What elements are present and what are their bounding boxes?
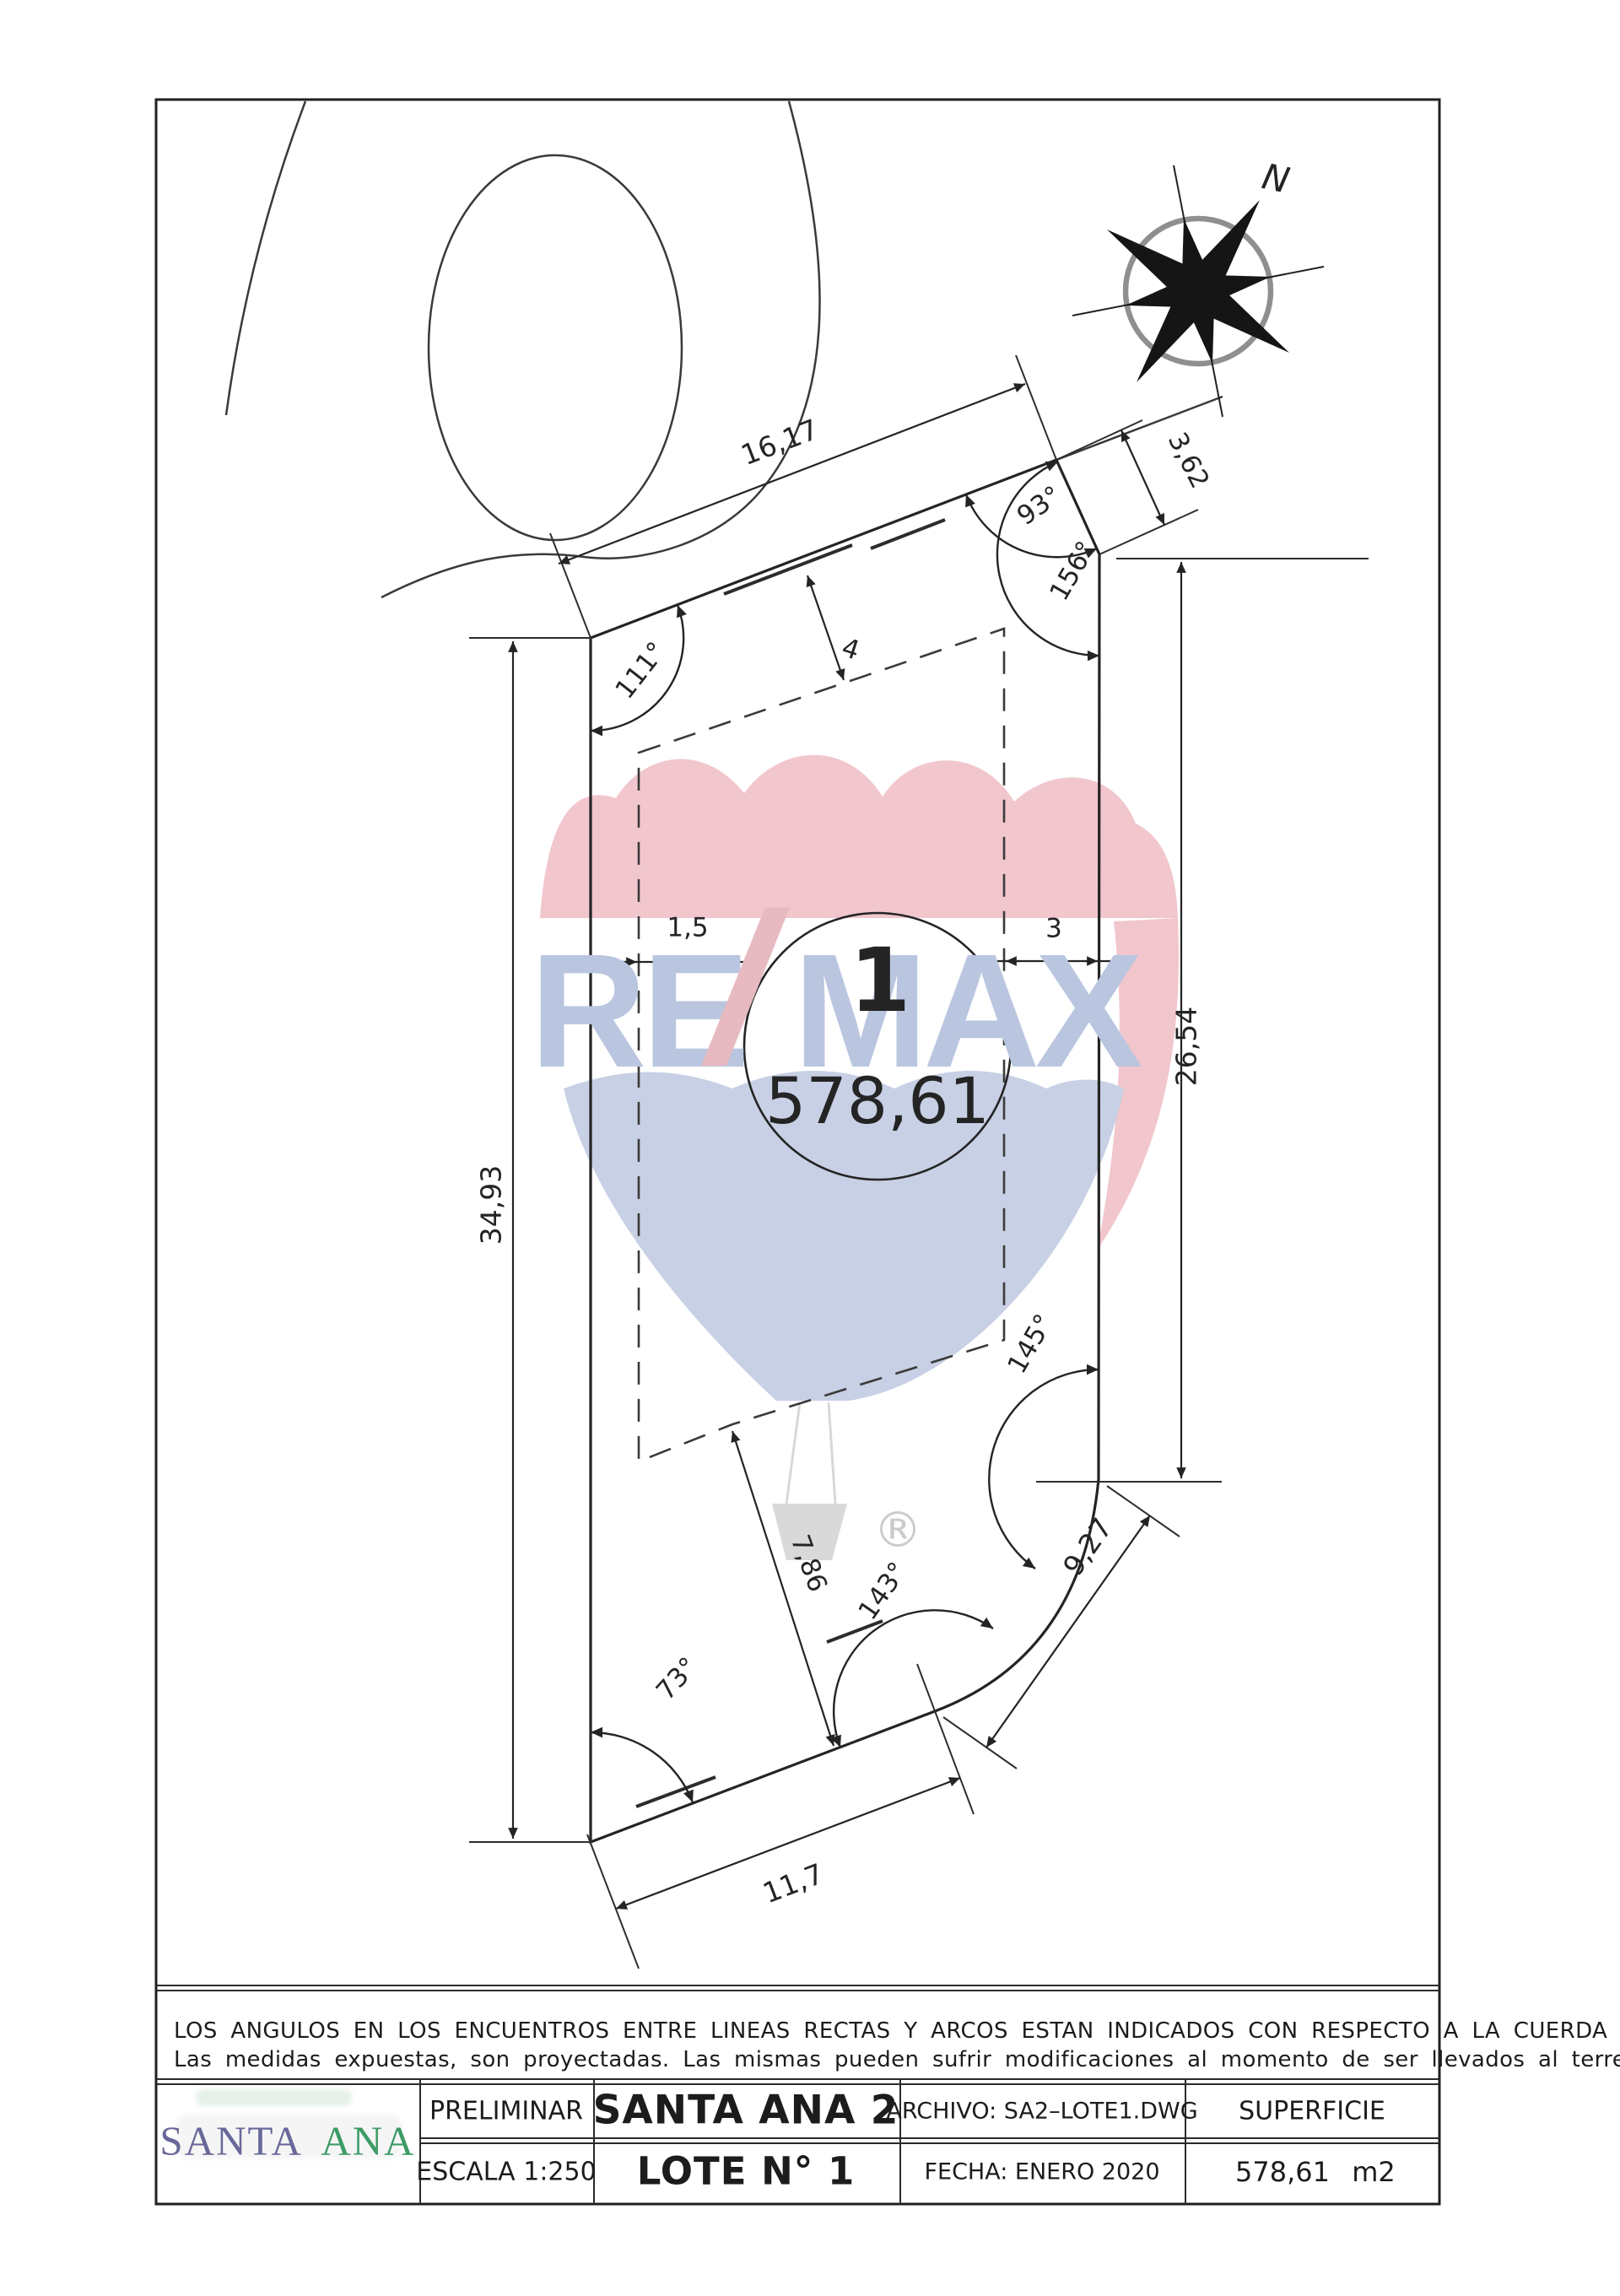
- titleblock-scale: ESCALA 1:250: [416, 2158, 596, 2187]
- dim-label-setback-left: 1,5: [667, 916, 708, 942]
- divider: [156, 2083, 1439, 2085]
- titleblock-file: ARCHIVO: SA2–LOTE1.DWG: [886, 2099, 1197, 2125]
- logo-faint-tagline: [196, 2089, 352, 2106]
- lot-area: 578,61: [765, 1069, 990, 1133]
- remax-balloon-watermark: [540, 755, 1179, 1560]
- divider: [156, 1985, 1439, 1986]
- titleblock-status: PRELIMINAR: [429, 2097, 583, 2126]
- road-curve: [381, 101, 820, 597]
- divider: [419, 2142, 1439, 2144]
- dim-label-left: 34,93: [478, 1165, 505, 1245]
- basket-rope-right: [829, 1402, 835, 1504]
- divider: [1185, 2078, 1186, 2204]
- basket-rope-left: [786, 1402, 800, 1504]
- titleblock-lot: LOTE N° 1: [637, 2149, 856, 2194]
- titleblock-area-value: 578,61: [1235, 2156, 1330, 2188]
- titleblock-date: FECHA: ENERO 2020: [924, 2159, 1159, 2185]
- registered-trademark-symbol: ®: [873, 1505, 922, 1554]
- divider: [156, 2078, 1439, 2080]
- plan-drawing: [0, 0, 1620, 2296]
- divider: [156, 1990, 1439, 1991]
- lot-number: 1: [850, 937, 910, 1024]
- titleblock-project: SANTA ANA 2: [593, 2088, 899, 2134]
- notes-line-2: Las medidas expuestas, son proyectadas. …: [174, 2047, 1620, 2072]
- road-features: [226, 101, 1223, 597]
- logo-word-ana: ANA: [321, 2118, 415, 2164]
- dim-label-setback-right: 3: [1045, 916, 1062, 943]
- divider: [899, 2078, 901, 2204]
- compass-points: [1107, 200, 1289, 382]
- roundabout-ellipse: [429, 155, 682, 540]
- dim-label-right: 26,54: [1173, 1007, 1201, 1086]
- survey-plan-sheet: RE MAX / ® 16,17 3,62 93° 156° 111° 4 1,…: [0, 0, 1620, 2296]
- dim-line-4: [807, 575, 844, 680]
- dim-line-3-62: [1121, 430, 1164, 525]
- contour-line-topleft: [226, 101, 305, 415]
- compass-rose: [1072, 165, 1324, 417]
- developer-logo: SANTA ANA: [159, 2117, 415, 2165]
- divider: [419, 2137, 1439, 2139]
- titleblock-area-header: SUPERFICIE: [1239, 2097, 1385, 2126]
- notes-line-1: LOS ANGULOS EN LOS ENCUENTROS ENTRE LINE…: [174, 2018, 1620, 2044]
- dim-line-16-17: [559, 384, 1025, 564]
- balloon-red-top: [540, 755, 1178, 918]
- logo-word-santa: SANTA: [159, 2118, 300, 2164]
- titleblock-area-unit: m2: [1352, 2156, 1396, 2188]
